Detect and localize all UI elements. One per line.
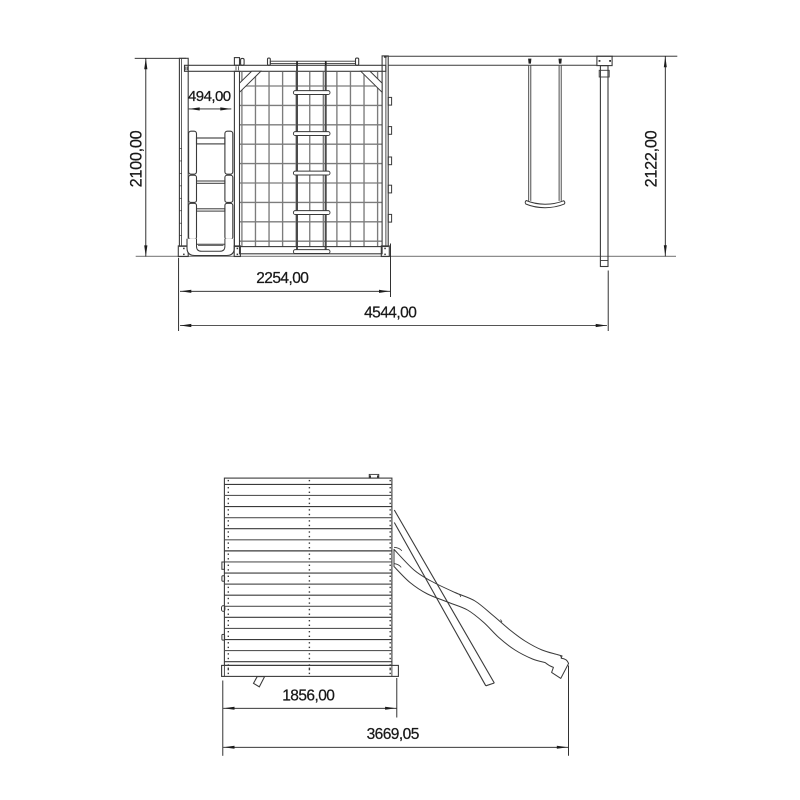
svg-text:2100,00: 2100,00 — [128, 130, 146, 187]
svg-text:3669,05: 3669,05 — [367, 726, 419, 743]
svg-text:494,00: 494,00 — [188, 88, 231, 105]
svg-text:2122,00: 2122,00 — [643, 130, 661, 187]
svg-text:4544,00: 4544,00 — [364, 304, 417, 321]
svg-text:2254,00: 2254,00 — [256, 270, 309, 287]
svg-text:1856,00: 1856,00 — [282, 687, 335, 704]
